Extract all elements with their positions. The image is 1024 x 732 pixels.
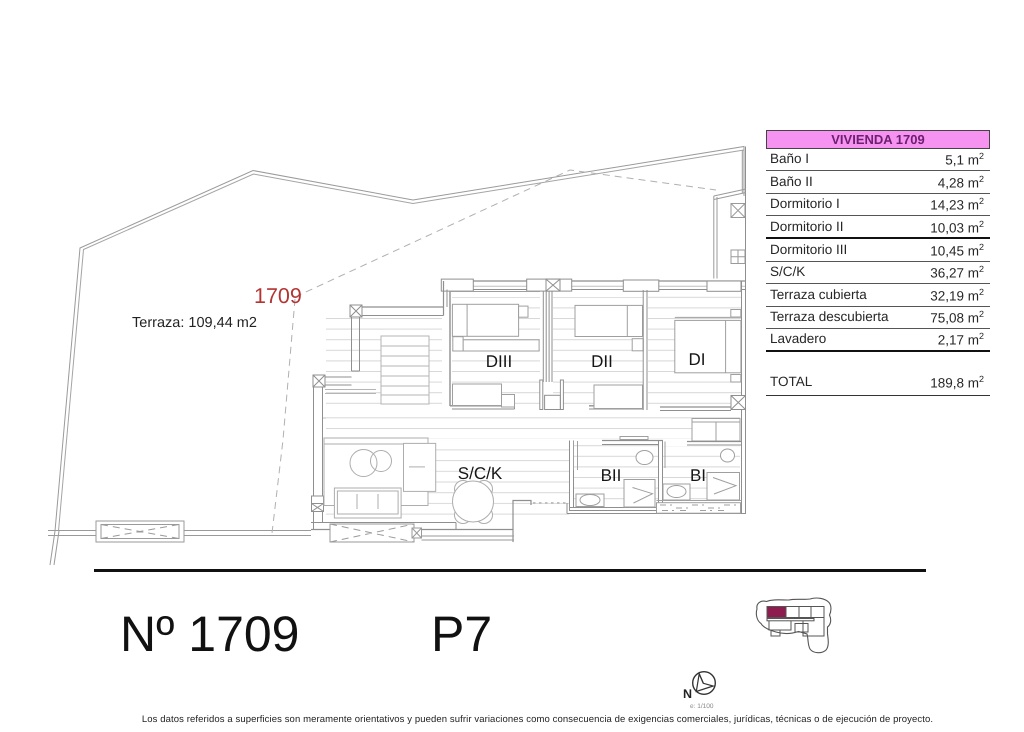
svg-text:DII: DII [591,352,613,371]
svg-text:S/C/K: S/C/K [458,464,503,483]
svg-text:DI: DI [689,350,706,369]
svg-text:e: 1/100: e: 1/100 [690,703,714,710]
svg-text:BII: BII [601,466,622,485]
svg-text:Terraza: 109,44 m2: Terraza: 109,44 m2 [132,315,257,331]
svg-text:DIII: DIII [486,352,512,371]
svg-text:1709: 1709 [254,284,302,308]
svg-text:N: N [683,687,692,701]
svg-text:BI: BI [690,466,706,485]
